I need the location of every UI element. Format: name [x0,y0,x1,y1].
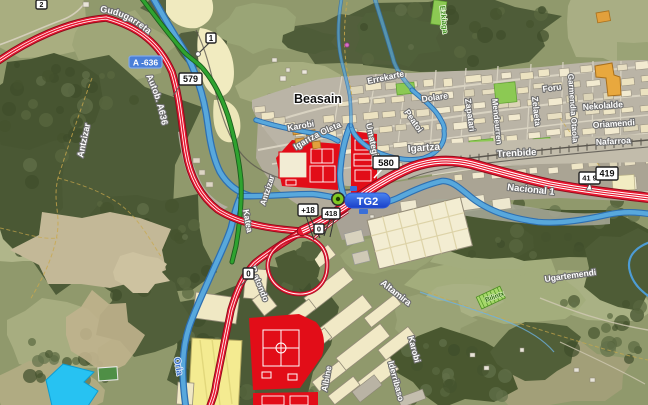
svg-text:Igartza: Igartza [407,142,440,155]
svg-text:41 9: 41 9 [582,174,597,183]
svg-text:419: 419 [599,169,614,179]
svg-text:+18: +18 [301,206,315,215]
svg-text:418: 418 [325,209,338,218]
svg-text:TG2: TG2 [357,196,378,208]
svg-text:0: 0 [317,225,321,234]
svg-text:0: 0 [246,269,251,278]
svg-text:Trenbide: Trenbide [497,147,537,160]
svg-text:Nafarroa: Nafarroa [596,135,632,147]
svg-text:1: 1 [209,34,214,43]
svg-text:579: 579 [183,74,198,84]
svg-text:2: 2 [40,2,44,9]
svg-text:Beasain: Beasain [294,92,342,106]
svg-text:580: 580 [378,158,394,169]
svg-text:A -636: A -636 [133,58,158,68]
